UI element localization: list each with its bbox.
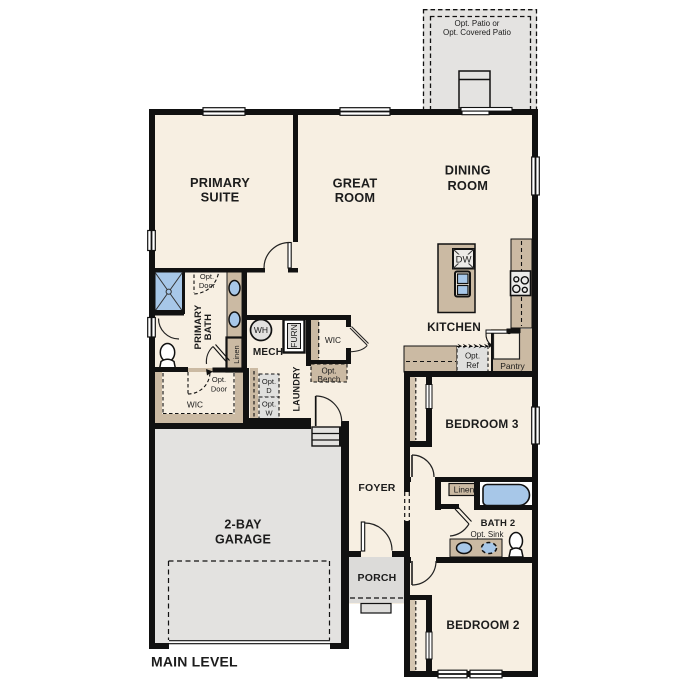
svg-text:Opt. Covered Patio: Opt. Covered Patio [443, 28, 512, 37]
svg-text:Pantry: Pantry [500, 361, 525, 371]
svg-text:ROOM: ROOM [447, 178, 488, 193]
svg-text:Opt.: Opt. [465, 352, 480, 361]
svg-text:Opt.: Opt. [200, 272, 214, 281]
svg-text:D: D [266, 386, 272, 395]
svg-text:DW: DW [456, 255, 472, 266]
svg-text:Linen: Linen [454, 485, 475, 495]
svg-text:LAUNDRY: LAUNDRY [292, 366, 302, 411]
svg-text:FOYER: FOYER [358, 482, 395, 494]
svg-text:Bench: Bench [318, 375, 341, 384]
svg-text:GARAGE: GARAGE [215, 533, 271, 547]
svg-text:BATH 2: BATH 2 [481, 518, 516, 529]
svg-text:BATH: BATH [203, 314, 214, 340]
svg-text:MECH: MECH [253, 347, 283, 358]
svg-text:Ref: Ref [466, 361, 479, 370]
svg-text:Door: Door [199, 281, 216, 290]
svg-text:SUITE: SUITE [201, 190, 240, 205]
svg-text:WIC: WIC [325, 335, 341, 345]
svg-text:ROOM: ROOM [335, 190, 376, 205]
svg-text:PORCH: PORCH [358, 572, 397, 584]
svg-text:Opt.: Opt. [212, 375, 226, 384]
svg-text:BEDROOM 3: BEDROOM 3 [445, 417, 518, 431]
svg-text:Linen: Linen [232, 345, 241, 363]
svg-text:2-BAY: 2-BAY [224, 518, 262, 532]
svg-text:Opt.: Opt. [262, 377, 276, 386]
svg-text:Opt. Sink: Opt. Sink [471, 530, 505, 539]
svg-text:PRIMARY: PRIMARY [190, 175, 250, 190]
svg-text:Door: Door [211, 385, 228, 394]
svg-text:KITCHEN: KITCHEN [427, 320, 481, 334]
svg-text:Opt. Patio or: Opt. Patio or [455, 19, 500, 28]
svg-text:BEDROOM 2: BEDROOM 2 [446, 618, 519, 632]
svg-text:WIC: WIC [187, 400, 203, 410]
svg-text:W: W [265, 409, 273, 418]
svg-text:MAIN LEVEL: MAIN LEVEL [151, 654, 238, 670]
svg-text:WH: WH [254, 325, 268, 335]
svg-text:DINING: DINING [445, 163, 491, 178]
svg-text:GREAT: GREAT [333, 176, 378, 191]
svg-text:Opt.: Opt. [262, 400, 276, 409]
svg-text:FURN: FURN [289, 324, 299, 348]
